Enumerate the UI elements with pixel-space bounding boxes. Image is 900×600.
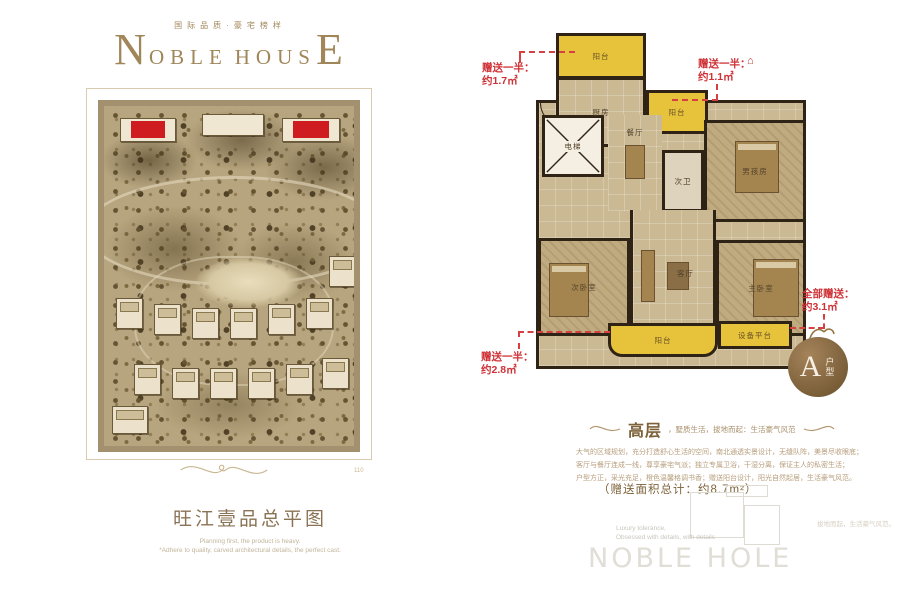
gift-value: 约2.8㎡ <box>481 364 534 377</box>
room-label: 阳台 <box>593 51 610 62</box>
room-dining: 餐厅 <box>608 115 662 211</box>
room-label: 主卧室 <box>748 283 774 294</box>
site-plan-caption: Planning first, the product is heavy. *A… <box>95 537 405 555</box>
room-boy: 男孩房 <box>704 120 806 222</box>
highlight-red-block <box>293 121 329 138</box>
gift-label: 全部赠送： <box>802 288 855 301</box>
room-equipment-platform: 设备平台 <box>718 321 792 349</box>
description-line: 大气的区域规划，充分打造舒心生活的空间，南北通透实景设计，无缝队阵，美景尽收眼底… <box>576 446 900 459</box>
room-label: 男孩房 <box>742 166 768 177</box>
faint-plan-sketch <box>726 485 768 497</box>
gift-connector <box>518 331 520 349</box>
site-plan-villa <box>306 298 333 329</box>
gift-value: 约1.7㎡ <box>482 75 535 88</box>
site-plan-building-highlighted <box>120 118 176 142</box>
swirl-right-icon <box>802 423 836 435</box>
caption-line-1: Planning first, the product is heavy. <box>95 537 405 546</box>
highlight-red-block <box>131 121 166 138</box>
house-icon: ⌂ <box>747 55 754 67</box>
dining-table-icon <box>625 145 645 179</box>
site-plan-villa <box>329 256 356 287</box>
room-label: 阳台 <box>655 335 672 346</box>
gift-label: 赠送一半： <box>698 58 751 71</box>
footer-english-text: Luxury tolerance, Obsessed with details,… <box>616 524 715 542</box>
brand-logo: 国际品质·豪宅榜样 NOBLE HOUSE <box>80 20 380 85</box>
room-living: 客厅 <box>630 210 716 336</box>
room-label: 次卧室 <box>571 282 597 293</box>
footer-english-line: Obsessed with details, with details <box>616 533 715 542</box>
unit-letter: A <box>800 350 822 384</box>
gift-annotation-top-left: 赠送一半： 约1.7㎡ <box>482 62 535 88</box>
heading-strong: 高层 <box>628 417 662 441</box>
site-plan-villa <box>268 304 295 335</box>
site-plan-villa <box>172 368 199 399</box>
gift-connector <box>519 51 575 53</box>
room-bath2: 次卫 <box>662 150 704 212</box>
flourish-ornament <box>176 461 272 479</box>
site-plan-clubhouse <box>112 406 148 434</box>
site-plan-building <box>202 114 264 136</box>
footer-chinese-text: 拔地而起，生活豪气风范。 <box>790 520 895 530</box>
faint-plan-sketch <box>744 505 780 545</box>
brand-watermark: NOBLE HOLE <box>588 543 792 574</box>
site-plan-villa <box>134 364 161 395</box>
room-label: 阳台 <box>669 107 686 118</box>
caption-line-2: *Adhere to quality, carved architectural… <box>95 546 405 555</box>
swirl-left-icon <box>588 423 622 435</box>
room-label: 次卫 <box>675 176 692 187</box>
description-heading: 高层 ，墅质生活，拔地而起：生活豪气风范 <box>588 417 888 441</box>
room-elevator: 电梯 <box>542 115 604 177</box>
gift-label: 赠送一半： <box>481 351 534 364</box>
gift-connector <box>518 331 610 333</box>
logo-letter-e: E <box>316 25 346 74</box>
site-plan-title: 旺江壹品总平图 <box>110 504 390 531</box>
site-plan-villa <box>322 358 349 389</box>
sofa-icon <box>641 250 655 302</box>
description-body: 大气的区域规划，充分打造舒心生活的空间，南北通透实景设计，无缝队阵，美景尽收眼底… <box>576 446 900 485</box>
gift-annotation-top-right: 赠送一半： 约1.1㎡ <box>698 58 751 84</box>
site-plan-villa <box>248 368 275 399</box>
description-line: 客厅与餐厅连成一线，尊享豪宅气派；独立专属卫浴，干湿分离，保证主人的私密生活； <box>576 459 900 472</box>
room-label: 设备平台 <box>738 330 772 341</box>
site-plan-building-highlighted <box>282 118 340 142</box>
room-balcony-bottom: 阳台 <box>608 323 718 357</box>
unit-suffix: 户型 <box>823 357 836 377</box>
room-label: 客厅 <box>677 268 694 279</box>
site-plan-villa <box>116 298 143 329</box>
gift-connector <box>672 99 718 101</box>
site-plan-villa <box>210 368 237 399</box>
heading-small: ，墅质生活，拔地而起：生活豪气风范 <box>668 424 796 435</box>
room-bedroom2: 次卧室 <box>538 238 630 336</box>
plate-number: 110 <box>354 468 364 474</box>
unit-type-badge: A 户型 <box>788 337 848 397</box>
gift-annotation-right: 全部赠送： 约3.1㎡ <box>802 288 855 314</box>
logo-letter-n: N <box>114 25 149 74</box>
gift-label: 赠送一半： <box>482 62 535 75</box>
poster-page: 国际品质·豪宅榜样 NOBLE HOUSE 110 旺江壹品总平图 Planni… <box>0 0 900 600</box>
site-plan-villa <box>230 308 257 339</box>
room-label: 电梯 <box>563 141 584 152</box>
gift-value: 约3.1㎡ <box>802 301 855 314</box>
site-plan-villa <box>192 308 219 339</box>
room-label: 厨房 <box>593 107 610 118</box>
footer-english-line: Luxury tolerance, <box>616 524 715 533</box>
logo-word-oble: OBLE <box>149 45 228 69</box>
site-plan-villa <box>286 364 313 395</box>
gift-value: 约1.1㎡ <box>698 71 751 84</box>
room-balcony-top: 阳台 <box>556 33 646 79</box>
gift-connector <box>716 84 718 100</box>
floor-plan: 阳台 厨房 阳台 电梯 餐厅 次卫 男孩房 <box>528 33 808 363</box>
site-plan-villa <box>154 304 181 335</box>
gift-annotation-bottom-left: 赠送一半： 约2.8㎡ <box>481 351 534 377</box>
brand-logo-text: NOBLE HOUSE <box>80 25 380 85</box>
site-plan-map <box>98 100 360 452</box>
logo-word-hous: HOUS <box>235 45 316 69</box>
room-label: 餐厅 <box>627 127 644 138</box>
